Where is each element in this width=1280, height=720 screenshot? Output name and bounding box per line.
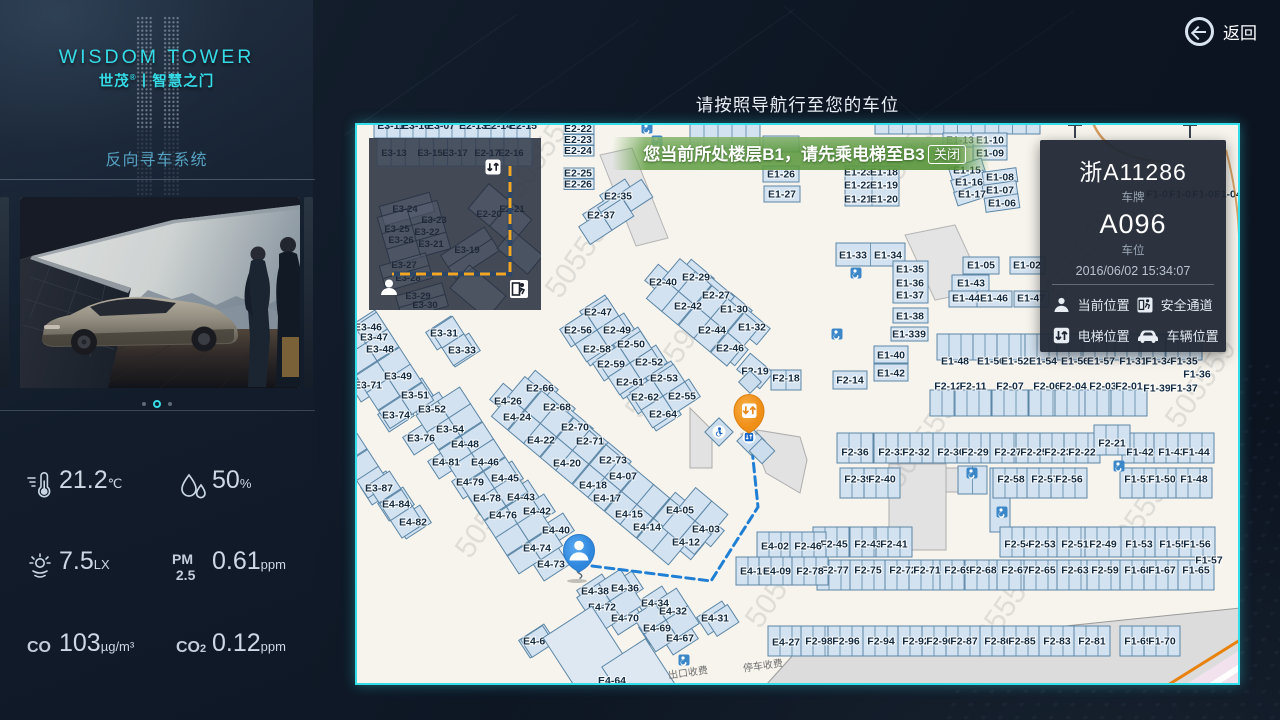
svg-text:E1-48: E1-48 [941,356,969,368]
svg-text:F1-42: F1-42 [1126,447,1154,459]
svg-text:F2-36: F2-36 [841,447,869,459]
svg-text:E4-82: E4-82 [399,517,427,529]
svg-text:E2-50: E2-50 [617,339,645,351]
svg-text:E2-29: E2-29 [682,272,710,284]
svg-text:F2-49: F2-49 [1089,539,1117,551]
svg-text:F2-11: F2-11 [960,381,987,393]
svg-text:E4-70: E4-70 [611,613,639,625]
svg-text:E1-56: E1-56 [1061,356,1089,368]
svg-text:E2-61: E2-61 [616,377,644,389]
svg-text:E3-07: E3-07 [427,125,455,132]
svg-text:F2-29: F2-29 [961,447,989,459]
svg-text:E4-64: E4-64 [598,675,626,683]
svg-text:E3-51: E3-51 [401,390,429,402]
svg-text:E1-34: E1-34 [874,250,902,262]
svg-text:E2-58: E2-58 [583,344,611,356]
svg-text:F1-31: F1-31 [1119,356,1147,368]
svg-text:E4-26: E4-26 [494,396,522,408]
svg-text:F2-45: F2-45 [820,539,848,551]
svg-text:E3-71: E3-71 [357,380,382,392]
svg-text:F1-37: F1-37 [1170,383,1198,395]
svg-text:E1-07: E1-07 [986,185,1014,197]
svg-text:E1-46: E1-46 [980,293,1008,305]
svg-text:E1-27: E1-27 [768,189,796,201]
svg-text:E1-06: E1-06 [988,198,1016,210]
svg-text:F2-63: F2-63 [1061,565,1089,577]
svg-text:E1-36: E1-36 [896,278,924,290]
svg-text:E3-47: E3-47 [360,332,388,344]
svg-text:E4-81: E4-81 [432,457,460,469]
svg-text:E4-02: E4-02 [761,541,789,553]
svg-text:E2-47: E2-47 [584,307,612,319]
svg-text:E4-46: E4-46 [471,457,499,469]
svg-text:E4-42: E4-42 [523,506,551,518]
svg-text:E1-22: E1-22 [844,180,872,192]
svg-text:E1-37: E1-37 [896,290,924,302]
svg-text:E1-44: E1-44 [952,293,980,305]
svg-text:E4-24: E4-24 [503,412,531,424]
svg-text:E3-19: E3-19 [454,245,479,256]
svg-text:E1-35: E1-35 [896,264,924,276]
svg-text:E3-49: E3-49 [384,371,412,383]
svg-text:E4-43: E4-43 [507,492,535,504]
svg-text:E3-13: E3-13 [381,148,406,159]
svg-text:F2-69: F2-69 [944,565,972,577]
svg-text:F2-71: F2-71 [913,565,941,577]
svg-text:E1-38: E1-38 [896,311,924,323]
svg-text:E1-26: E1-26 [767,169,795,181]
svg-text:E2-37: E2-37 [587,210,615,222]
svg-text:E1-32: E1-32 [738,322,766,334]
svg-text:E2-42: E2-42 [674,301,702,313]
svg-text:E2-46: E2-46 [716,343,744,355]
svg-text:F2-32: F2-32 [902,447,930,459]
svg-text:E4-79: E4-79 [456,477,484,489]
svg-text:F2-68: F2-68 [969,565,997,577]
svg-text:E1-40: E1-40 [877,350,905,362]
svg-text:E2-66: E2-66 [526,383,554,395]
svg-text:E2-26: E2-26 [564,179,592,191]
svg-text:E1-19: E1-19 [870,180,898,192]
svg-text:E3-22: E3-22 [414,227,439,238]
svg-text:F2-21: F2-21 [1098,438,1126,450]
svg-text:E3-52: E3-52 [418,404,446,416]
svg-text:E2-62: E2-62 [631,392,659,404]
svg-text:E4-84: E4-84 [382,499,410,511]
svg-text:F2-53: F2-53 [1028,539,1056,551]
svg-text:E4-14: E4-14 [633,522,661,534]
svg-text:E3-74: E3-74 [382,410,410,422]
svg-text:E2-20: E2-20 [476,209,501,220]
svg-text:F2-58: F2-58 [997,474,1025,486]
svg-text:E3-21: E3-21 [418,239,444,250]
svg-text:E2-27: E2-27 [702,290,730,302]
svg-text:E2-70: E2-70 [561,422,589,434]
svg-text:E3-87: E3-87 [365,483,393,495]
svg-text:F1-53: F1-53 [1125,539,1153,551]
svg-text:E4-73: E4-73 [537,559,565,571]
svg-text:F2-77: F2-77 [821,565,849,577]
svg-text:F1-44: F1-44 [1182,447,1210,459]
svg-text:F2-96: F2-96 [832,636,860,648]
svg-text:E4-74: E4-74 [523,543,551,555]
svg-text:E3-16: E3-16 [402,125,430,132]
svg-text:F2-07: F2-07 [996,381,1024,393]
svg-text:E3-26: E3-26 [388,235,413,246]
svg-text:E4-22: E4-22 [527,435,555,447]
svg-text:E2-14: E2-14 [484,125,512,132]
svg-text:E1-21: E1-21 [844,194,872,206]
svg-text:E2-15: E2-15 [509,125,537,132]
svg-text:E4-17: E4-17 [593,493,621,505]
svg-text:E2-17: E2-17 [474,148,499,159]
svg-text:F2-87: F2-87 [950,636,978,648]
svg-text:E1-16: E1-16 [955,177,983,189]
svg-text:E1-54: E1-54 [1029,356,1057,368]
svg-text:E1-339: E1-339 [892,329,926,341]
svg-text:E4-12: E4-12 [672,537,700,549]
svg-text:F2-65: F2-65 [1028,565,1056,577]
svg-text:E3-30: E3-30 [412,300,437,310]
svg-text:E1-30: E1-30 [720,304,748,316]
svg-text:F2-46: F2-46 [794,541,822,553]
svg-text:E4-20: E4-20 [553,458,581,470]
svg-text:F1-67: F1-67 [1148,565,1176,577]
svg-text:E2-13: E2-13 [459,125,487,132]
svg-text:E1-57: E1-57 [1087,356,1115,368]
svg-text:E3-54: E3-54 [436,424,464,436]
svg-text:E1-33: E1-33 [839,250,867,262]
svg-text:E1-02: E1-02 [1013,260,1041,272]
svg-text:F1-34: F1-34 [1145,356,1173,368]
svg-text:F2-94: F2-94 [867,636,895,648]
svg-text:F2-98: F2-98 [805,636,833,648]
svg-text:E1-52: E1-52 [1001,356,1029,368]
svg-text:F1-35: F1-35 [1170,356,1198,368]
svg-text:F2-06: F2-06 [1033,381,1061,393]
svg-text:F2-67: F2-67 [1001,565,1029,577]
svg-text:E1-17: E1-17 [958,189,986,201]
svg-text:E2-44: E2-44 [698,325,726,337]
svg-text:F2-75: F2-75 [854,565,882,577]
svg-text:E4-48: E4-48 [451,439,479,451]
svg-text:F2-27: F2-27 [994,447,1022,459]
svg-text:E4-67: E4-67 [666,633,694,645]
svg-text:F2-18: F2-18 [772,373,800,385]
svg-text:F2-40: F2-40 [868,474,896,486]
svg-text:E4-45: E4-45 [491,473,519,485]
svg-text:E3-76: E3-76 [407,433,435,445]
svg-text:E4-32: E4-32 [659,606,687,618]
svg-text:E2-64: E2-64 [649,409,677,421]
svg-text:E2-55: E2-55 [668,391,696,403]
svg-text:E3-17: E3-17 [442,148,467,159]
svg-text:E2-49: E2-49 [603,325,631,337]
svg-text:E4-31: E4-31 [701,613,729,625]
svg-text:F2-12: F2-12 [934,381,962,393]
svg-text:F1-39: F1-39 [1143,383,1171,395]
svg-text:E4-18: E4-18 [579,480,607,492]
svg-text:E2-40: E2-40 [649,277,677,289]
svg-text:E2-73: E2-73 [599,455,627,467]
svg-text:F2-81: F2-81 [1078,636,1106,648]
svg-text:E2-68: E2-68 [543,402,571,414]
svg-text:F2-78: F2-78 [796,566,824,578]
svg-text:E2-56: E2-56 [564,325,592,337]
svg-text:F2-85: F2-85 [1008,636,1036,648]
svg-text:F2-41: F2-41 [880,539,908,551]
svg-text:F2-03: F2-03 [1089,381,1117,393]
svg-text:F1-36: F1-36 [1183,369,1211,381]
svg-text:E2-71: E2-71 [576,436,604,448]
svg-text:E2-16: E2-16 [498,148,523,159]
svg-text:F2-14: F2-14 [836,375,864,387]
svg-text:E4-78: E4-78 [473,493,501,505]
svg-text:E1-05: E1-05 [967,260,995,272]
svg-text:F1-70: F1-70 [1148,636,1176,648]
svg-text:F2-22: F2-22 [1068,447,1096,459]
svg-text:E4-38: E4-38 [581,586,609,598]
svg-text:E1-43: E1-43 [957,278,985,290]
svg-text:E3-33: E3-33 [448,345,476,357]
svg-text:F2-51: F2-51 [1061,539,1089,551]
svg-text:E4-27: E4-27 [772,637,800,649]
svg-text:E4-40: E4-40 [542,525,570,537]
svg-text:E2-53: E2-53 [650,373,678,385]
svg-text:E2-59: E2-59 [597,359,625,371]
svg-text:F1-50: F1-50 [1148,474,1176,486]
svg-text:E2-35: E2-35 [604,191,632,203]
svg-text:E3-24: E3-24 [392,204,418,215]
svg-text:E1-20: E1-20 [870,194,898,206]
svg-text:F1-48: F1-48 [1180,474,1208,486]
svg-text:E4-05: E4-05 [666,505,694,517]
svg-text:E4-09: E4-09 [763,566,791,578]
svg-text:E4-07: E4-07 [609,471,637,483]
svg-text:E3-27: E3-27 [391,260,416,271]
svg-text:E2-52: E2-52 [635,357,663,369]
svg-text:F2-01: F2-01 [1115,381,1143,393]
svg-text:E2-24: E2-24 [564,145,592,157]
svg-text:F1-65: F1-65 [1182,565,1210,577]
svg-text:E3-15: E3-15 [417,148,443,159]
svg-text:F2-56: F2-56 [1055,474,1083,486]
svg-text:F1-56: F1-56 [1183,539,1211,551]
svg-text:E4-03: E4-03 [692,524,720,536]
svg-text:E3-48: E3-48 [366,344,394,356]
svg-text:E3-31: E3-31 [430,328,458,340]
svg-text:E3-11: E3-11 [377,125,405,132]
svg-text:F2-43: F2-43 [854,539,882,551]
svg-text:E4-76: E4-76 [489,510,517,522]
svg-text:E1-42: E1-42 [877,368,905,380]
svg-text:E4-36: E4-36 [611,583,639,595]
svg-text:F2-59: F2-59 [1091,565,1119,577]
svg-text:E3-23: E3-23 [421,215,446,226]
svg-text:F2-83: F2-83 [1043,636,1071,648]
svg-text:F2-04: F2-04 [1059,381,1087,393]
svg-text:E1-08: E1-08 [986,172,1014,184]
svg-text:E3-25: E3-25 [384,224,410,235]
svg-text:E4-15: E4-15 [615,509,643,521]
